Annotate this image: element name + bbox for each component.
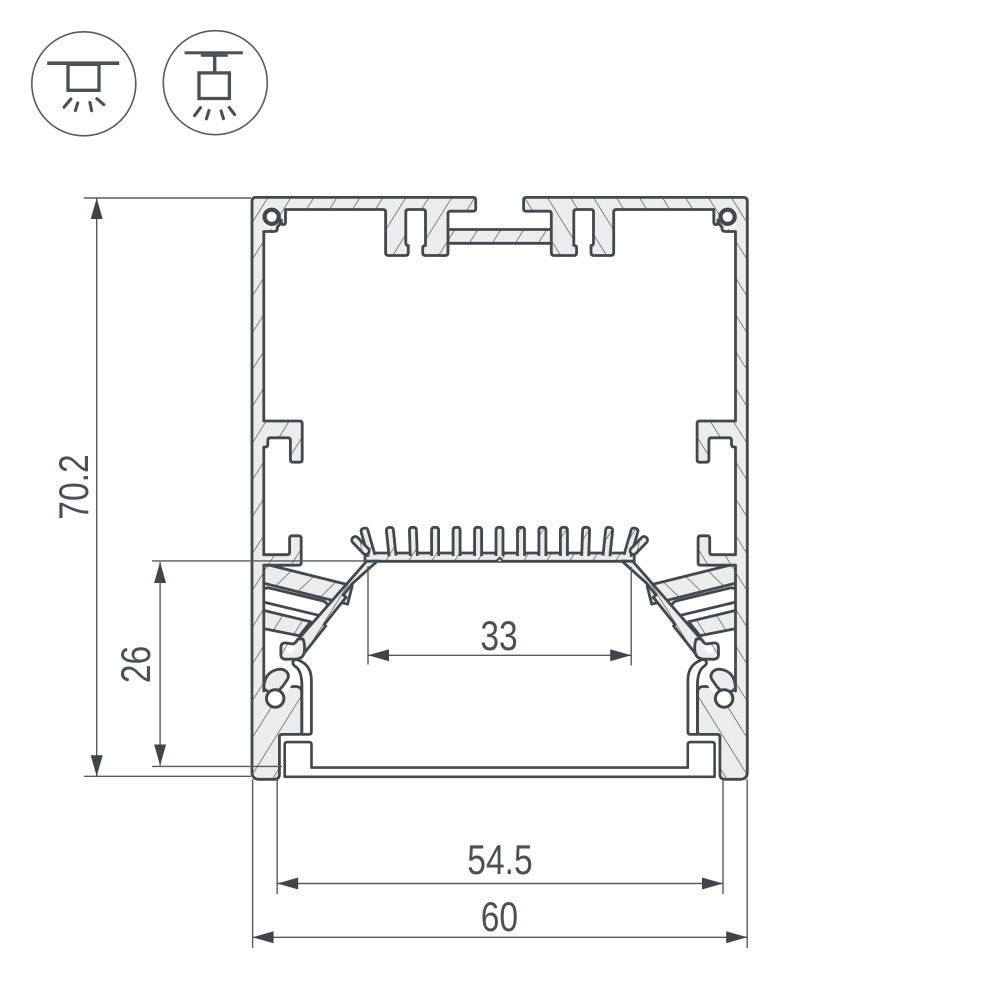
- svg-text:33: 33: [480, 614, 517, 660]
- svg-text:60: 60: [481, 895, 518, 941]
- svg-text:70.2: 70.2: [52, 454, 98, 519]
- svg-text:54.5: 54.5: [467, 838, 532, 884]
- svg-text:26: 26: [114, 646, 160, 683]
